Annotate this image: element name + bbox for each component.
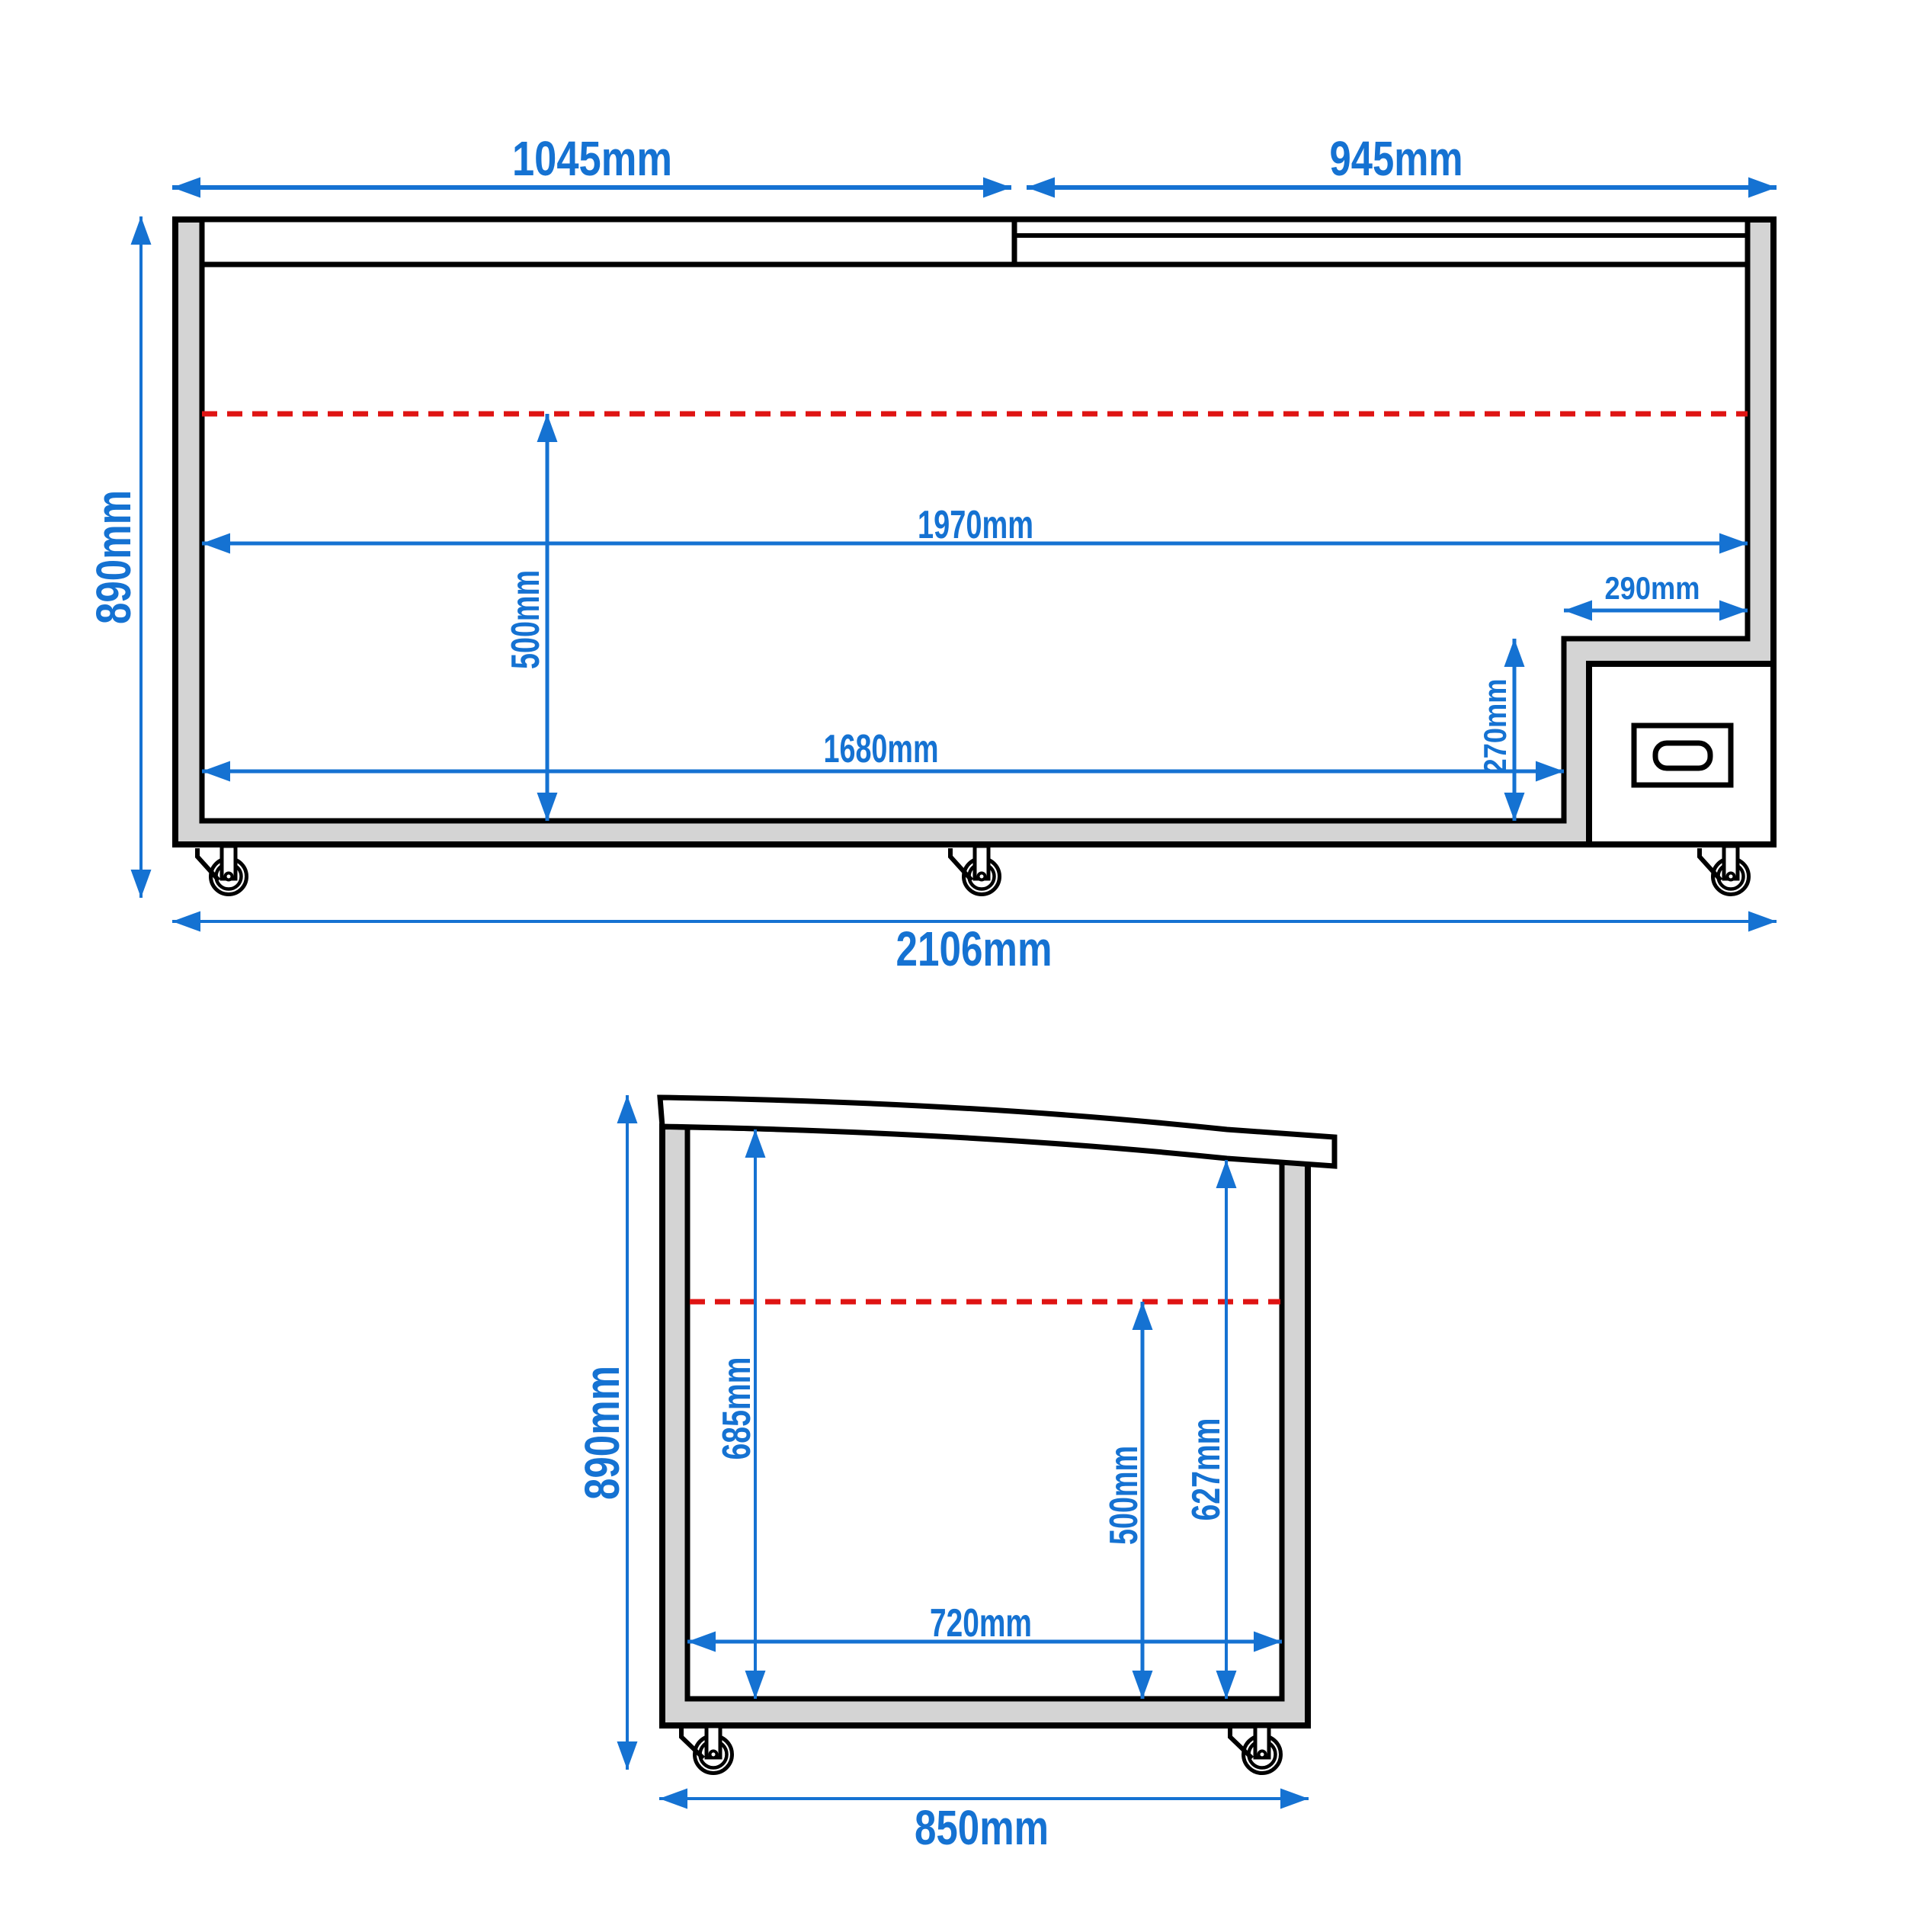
svg-text:890mm: 890mm — [86, 490, 141, 624]
svg-text:627mm: 627mm — [1184, 1418, 1229, 1521]
svg-text:500mm: 500mm — [1102, 1446, 1146, 1545]
svg-text:685mm: 685mm — [715, 1357, 759, 1460]
svg-text:850mm: 850mm — [915, 1800, 1049, 1855]
svg-text:2106mm: 2106mm — [896, 921, 1053, 976]
svg-text:945mm: 945mm — [1330, 131, 1463, 186]
svg-text:890mm: 890mm — [575, 1366, 630, 1500]
svg-text:270mm: 270mm — [1477, 679, 1513, 774]
svg-text:1680mm: 1680mm — [824, 727, 939, 771]
svg-text:1045mm: 1045mm — [512, 131, 672, 186]
svg-text:290mm: 290mm — [1605, 570, 1700, 606]
svg-text:1970mm: 1970mm — [918, 503, 1033, 547]
svg-text:500mm: 500mm — [504, 570, 548, 669]
svg-text:720mm: 720mm — [930, 1601, 1032, 1645]
